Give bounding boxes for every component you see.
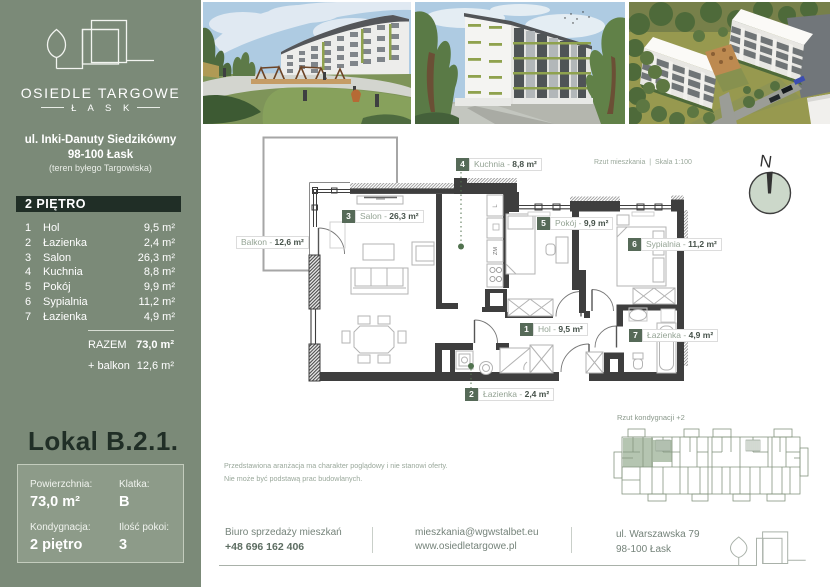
svg-text:N: N <box>758 151 773 172</box>
svg-text:ZM: ZM <box>493 247 499 255</box>
